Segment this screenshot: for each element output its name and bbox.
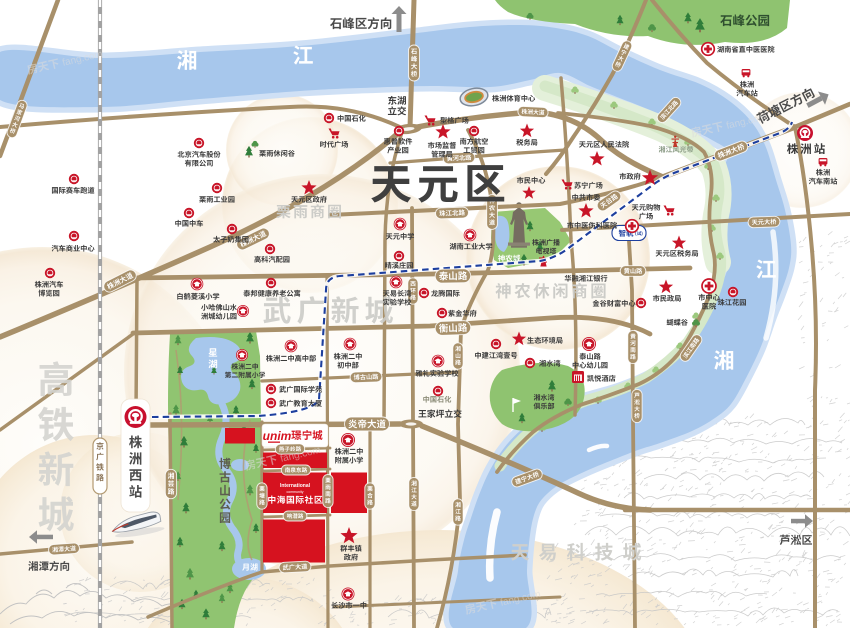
- svg-text:International: International: [280, 483, 311, 489]
- svg-text:unim: unim: [263, 429, 292, 443]
- svg-text:community: community: [287, 490, 304, 494]
